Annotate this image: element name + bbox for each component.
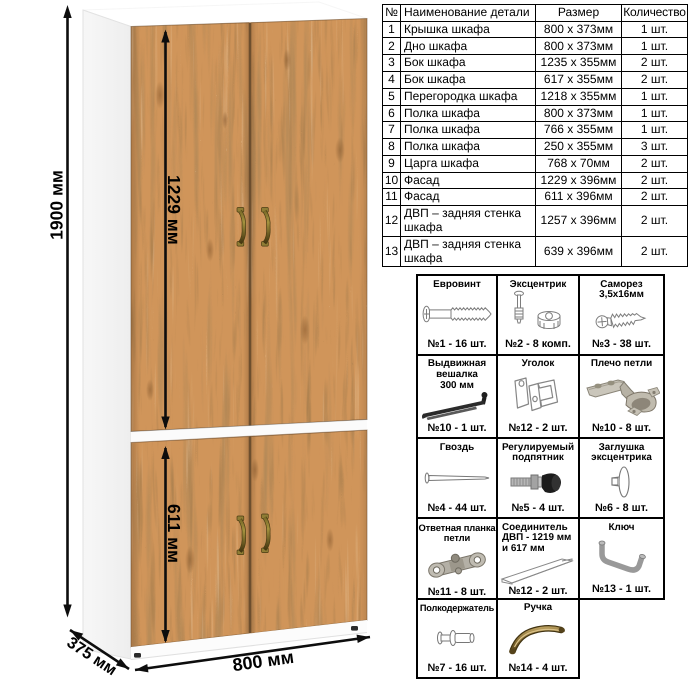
svg-text:1229 мм: 1229 мм <box>164 175 184 245</box>
svg-text:1900 мм: 1900 мм <box>47 170 67 240</box>
svg-text:800 мм: 800 мм <box>231 647 295 675</box>
svg-text:611 мм: 611 мм <box>164 504 184 563</box>
